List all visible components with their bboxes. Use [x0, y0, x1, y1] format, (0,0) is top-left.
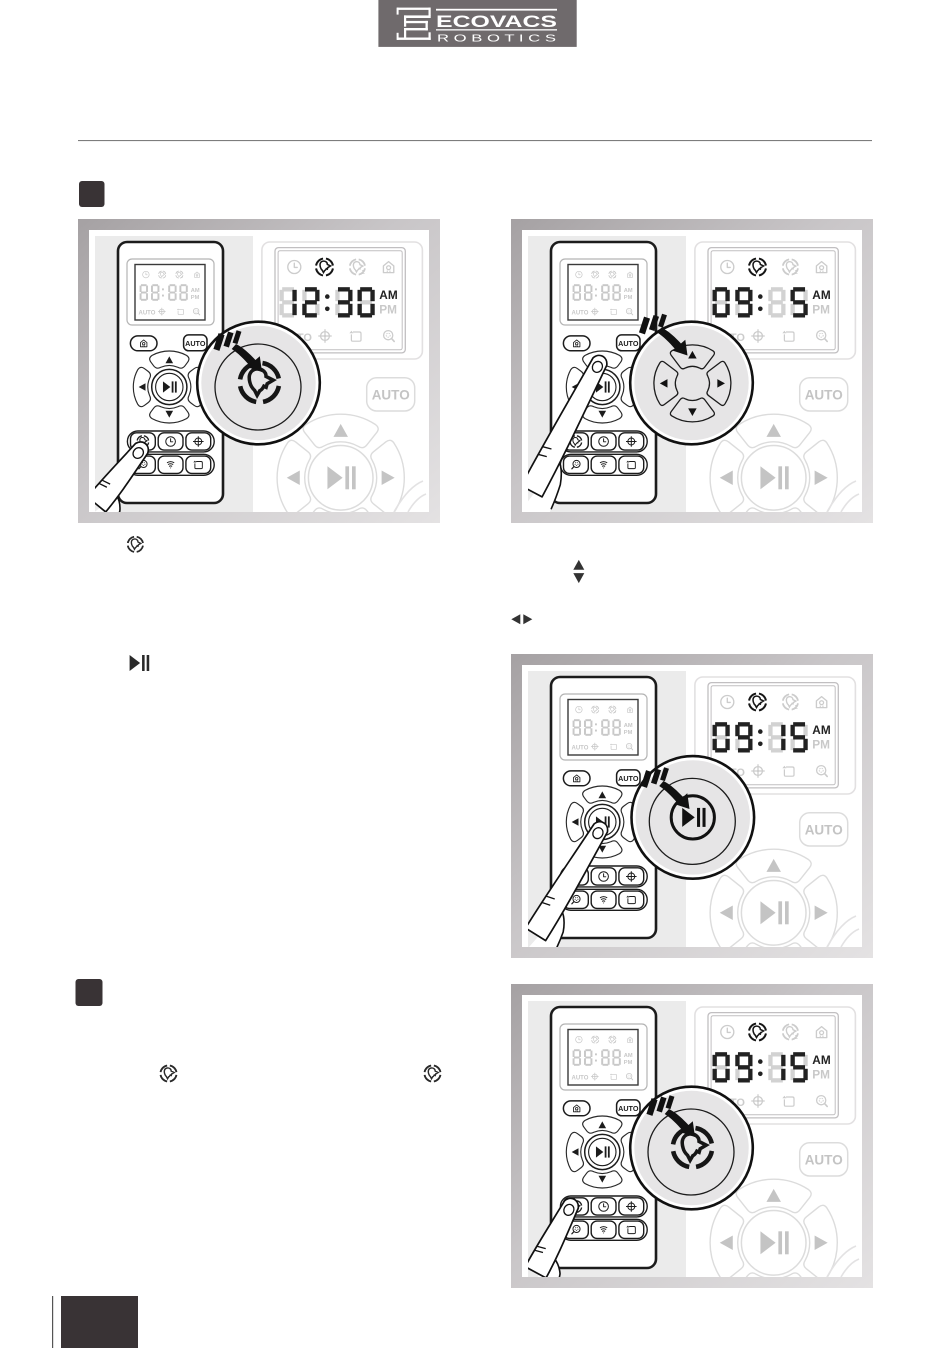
svg-text:R O B O T I C S: R O B O T I C S	[437, 34, 557, 45]
svg-text:AM: AM	[624, 723, 633, 729]
svg-text:AUTO: AUTO	[372, 388, 410, 403]
svg-text:AUTO: AUTO	[572, 310, 589, 316]
svg-text:AM: AM	[624, 1053, 633, 1059]
svg-text:AUTO: AUTO	[805, 388, 843, 403]
svg-text:AM: AM	[812, 288, 831, 302]
svg-text:PM: PM	[812, 738, 830, 752]
svg-text:AM: AM	[191, 288, 200, 294]
svg-text:AUTO: AUTO	[805, 823, 843, 838]
svg-text:AUTO: AUTO	[618, 339, 639, 348]
svg-text:AUTO: AUTO	[572, 745, 589, 751]
svg-text:PM: PM	[812, 1068, 830, 1082]
svg-text:PM: PM	[812, 303, 830, 317]
svg-text:AUTO: AUTO	[618, 1104, 639, 1113]
svg-text:AM: AM	[812, 1053, 831, 1067]
svg-text:AM: AM	[379, 288, 398, 302]
svg-text:AM: AM	[812, 723, 831, 737]
svg-text:AM: AM	[624, 288, 633, 294]
svg-text:PM: PM	[624, 730, 633, 736]
svg-text:AUTO: AUTO	[185, 339, 206, 348]
svg-text:PM: PM	[624, 295, 633, 301]
svg-text:AUTO: AUTO	[618, 774, 639, 783]
svg-text:AUTO: AUTO	[805, 1153, 843, 1168]
svg-text:PM: PM	[624, 1060, 633, 1066]
svg-text:PM: PM	[379, 303, 397, 317]
svg-text:PM: PM	[191, 295, 200, 301]
svg-text:AUTO: AUTO	[139, 310, 156, 316]
svg-text:AUTO: AUTO	[572, 1075, 589, 1081]
svg-text:ECOVACS: ECOVACS	[436, 12, 557, 31]
